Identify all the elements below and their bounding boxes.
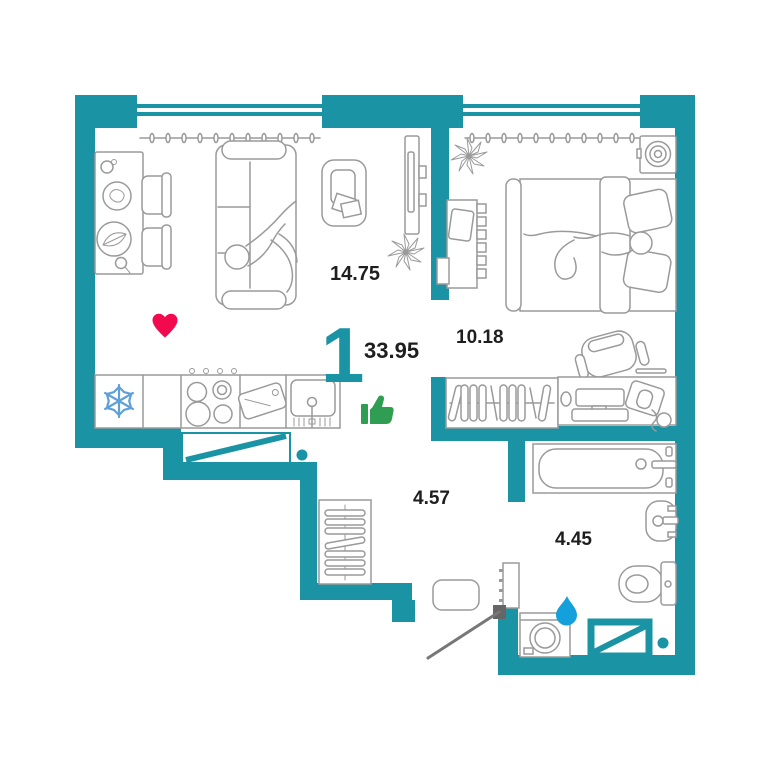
hall-shelving <box>319 500 371 584</box>
coffee-table <box>322 160 366 226</box>
bathroom-area-label: 4.45 <box>555 530 592 549</box>
door-handle-dot <box>297 450 308 461</box>
water-drop-icon <box>556 596 577 626</box>
floor-plan-drawing <box>0 0 768 768</box>
toilet <box>619 562 676 605</box>
wardrobe-hangers <box>446 378 558 428</box>
total-area-label: 33.95 <box>364 340 419 362</box>
speaker-nightstand <box>637 136 676 173</box>
plant <box>451 138 487 174</box>
living-kitchen-area-label: 14.75 <box>330 264 380 284</box>
curtain-rail <box>465 134 652 143</box>
dining-chair <box>142 225 171 269</box>
hall-area-label: 4.57 <box>413 489 450 508</box>
rooms-count-label: 1 <box>321 318 364 392</box>
floor-plan: 14.75 10.18 1 33.95 4.57 4.45 <box>0 0 768 768</box>
dining-table <box>95 152 143 274</box>
crossed-opening-icon <box>591 622 649 656</box>
bathroom-sink <box>646 501 678 541</box>
door-handle-dot <box>658 638 669 649</box>
crossed-opening-icon <box>182 433 290 463</box>
dining-chair <box>142 173 171 217</box>
window-bedroom <box>463 104 640 116</box>
bathtub <box>533 444 676 493</box>
thumbs-up-icon <box>361 395 394 424</box>
bedroom-area-label: 10.18 <box>456 328 504 347</box>
rug <box>433 580 479 610</box>
desk <box>558 369 676 431</box>
tv-unit <box>405 136 426 234</box>
plant <box>388 234 424 270</box>
heart-icon <box>153 314 178 338</box>
window-living <box>137 104 322 116</box>
